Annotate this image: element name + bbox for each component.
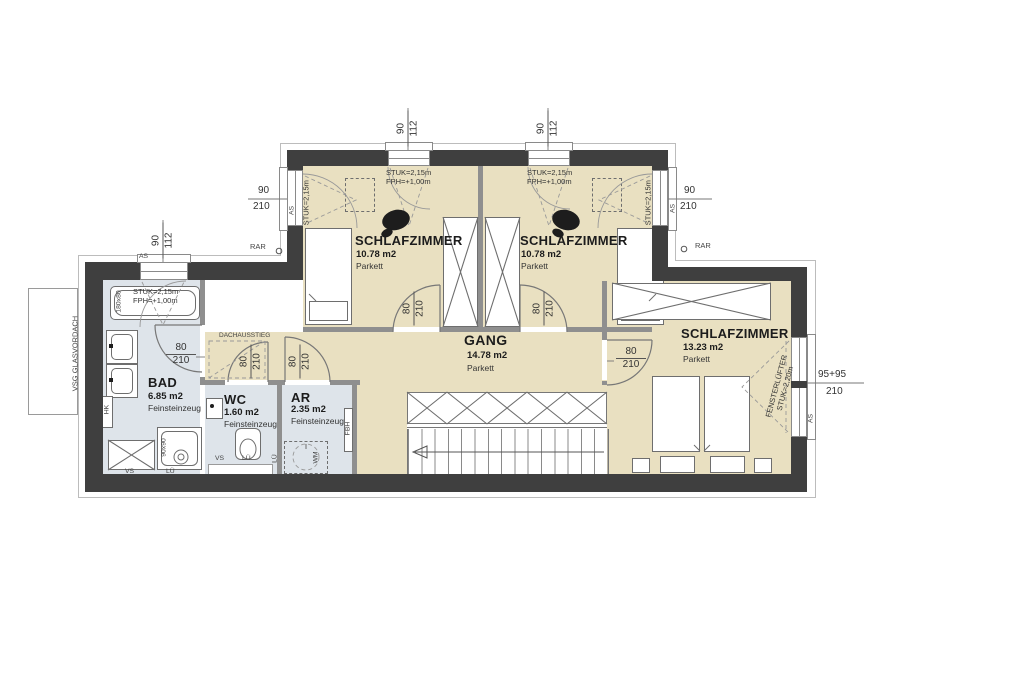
wall-bedroom2-right-upper <box>652 150 668 172</box>
dim-a: 80 <box>532 292 545 326</box>
ar-area: 2.35 m2 <box>291 404 326 415</box>
dim-window-bedroom1-a: 90 <box>258 185 269 196</box>
dim-b: 210 <box>415 292 427 326</box>
ar-floor: Feinsteinzeug <box>291 416 344 426</box>
window-top2 <box>528 150 570 166</box>
dim-window-bedroom3-b: 210 <box>826 386 843 397</box>
offset-line-bottom <box>78 497 816 498</box>
bedroom2-sidewindow-note: STUK=2,15m <box>643 173 652 233</box>
wc-floor: Feinsteinzeug <box>224 419 277 429</box>
bedroom2-window-note: STUK=2,15m FPH=+1,00m <box>527 168 572 187</box>
bed-single-1-pillow <box>309 301 348 321</box>
bedroom1-area: 10.78 m2 <box>356 249 396 260</box>
as-label-bedroom2: AS <box>670 202 677 216</box>
window-bedroom2 <box>652 170 668 226</box>
bad-floor: Feinsteinzeug <box>148 403 201 413</box>
bad-area: 6.85 m2 <box>148 391 183 402</box>
fbh-label: FBH <box>345 420 352 438</box>
bed-double-mattress-right <box>704 376 750 452</box>
window-bedroom3-mullion <box>791 381 807 388</box>
fph-note: FPH=+1,00m <box>133 296 178 305</box>
dim-a: 90 <box>396 111 409 147</box>
dim-window-bedroom2-a: 90 <box>684 185 695 196</box>
dim-a: 90 <box>536 111 549 147</box>
bedroom1-window-note: STUK=2,15m FPH=+1,00m <box>386 168 431 187</box>
offset-line-step-right <box>675 260 816 261</box>
dim-b: 210 <box>616 359 646 371</box>
ar-title: AR <box>291 390 310 405</box>
stairs <box>407 429 609 474</box>
wardrobe-bedroom2 <box>485 217 520 327</box>
dim-b: 112 <box>409 111 421 147</box>
bathroom-cabinet <box>108 440 155 470</box>
bed-double-pillow-right <box>710 456 745 473</box>
bedroom3-title: SCHLAFZIMMER <box>681 326 789 341</box>
dim-b: 210 <box>252 345 264 379</box>
vs-label-bad: VS <box>125 468 134 475</box>
glasvordach-label: VSG GLASVORDACH <box>71 294 80 414</box>
bathtub-size-label: 180x80 <box>116 287 123 317</box>
sink-2-basin <box>111 368 133 394</box>
lue-label-ar: LÜ <box>272 452 279 466</box>
dim-a: 80 <box>166 342 196 355</box>
closet-bedroom3 <box>612 283 771 320</box>
bedroom3-area: 13.23 m2 <box>683 342 723 353</box>
dim-window-bedroom2-b: 210 <box>680 201 697 212</box>
dim-window-bedroom3-a: 95+95 <box>818 369 846 380</box>
dim-window-top1: 90 112 <box>396 111 421 147</box>
bedroom2-title: SCHLAFZIMMER <box>520 233 628 248</box>
wc-area: 1.60 m2 <box>224 407 259 418</box>
railing-double-line <box>407 427 607 428</box>
floor-gang-landing <box>355 380 407 474</box>
dim-a: 90 <box>151 223 164 259</box>
vs-label-wc: VS <box>215 455 224 462</box>
wm-label: WM <box>313 450 320 466</box>
nightstand-left <box>632 458 650 473</box>
dim-window-top2: 90 112 <box>536 111 561 147</box>
dim-window-bedroom1-b: 210 <box>253 201 270 212</box>
bedroom1-sidewindow-note: STUK=2,15m <box>301 173 310 233</box>
dim-a: 80 <box>402 292 415 326</box>
dim-b: 210 <box>545 292 557 326</box>
fph-note: FPH=+1,00m <box>386 177 431 186</box>
wall-bedrooms-gang-c <box>567 327 652 332</box>
dim-b: 112 <box>164 223 176 259</box>
dim-door-bedroom1: 80 210 <box>402 292 427 326</box>
dim-a: 80 <box>288 345 301 379</box>
wall-bedrooms-gang-a <box>303 327 393 332</box>
wall-west-top-b <box>188 262 303 280</box>
wc-title: WC <box>224 392 246 407</box>
wall-wc-ar-top-a <box>200 380 225 385</box>
dim-b: 112 <box>549 111 561 147</box>
wall-east-upper <box>791 267 807 337</box>
hk-label: HK <box>104 403 111 417</box>
bedroom3-floor: Parkett <box>683 354 710 364</box>
dim-b: 210 <box>301 345 313 379</box>
dim-window-bad: 90 112 <box>151 223 176 259</box>
floor-gang-strip <box>407 380 607 392</box>
dachausstieg-label: DACHAUSSTIEG <box>219 332 270 339</box>
bed-double-pillow-left <box>660 456 695 473</box>
as-label-bad: AS <box>139 253 148 260</box>
bad-title: BAD <box>148 375 177 390</box>
wall-gang-bedroom3-b <box>602 381 607 385</box>
window-bad <box>140 262 188 280</box>
shower-size-label: 90x90 <box>161 433 168 463</box>
wc-hand-basin <box>206 398 223 419</box>
as-label-bedroom3: AS <box>808 412 815 426</box>
wall-step-east <box>652 267 807 281</box>
window-top1 <box>388 150 430 166</box>
dim-door-bad: 80 210 <box>166 342 196 367</box>
floor-plan: SCHLAFZIMMER 10.78 m2 Parkett SCHLAFZIMM… <box>0 0 1024 683</box>
window-bedroom2-sill <box>668 167 677 231</box>
rar-label-left: RAR <box>250 242 266 251</box>
bedroom1-floor: Parkett <box>356 261 383 271</box>
sink-1-basin <box>111 334 133 360</box>
stuk-note: STUK=2,15m <box>527 168 572 177</box>
bad-window-note: STUK=2,15m FPH=+1,00m <box>133 287 178 306</box>
desk-bedroom2 <box>592 178 622 212</box>
nightstand-right <box>754 458 772 473</box>
stuk-note: STUK=2,15m <box>386 168 431 177</box>
dim-b: 210 <box>166 355 196 367</box>
wall-south <box>85 474 807 492</box>
wall-west <box>85 262 103 492</box>
floor-gang <box>205 332 602 380</box>
bed-double-mattress-left <box>652 376 700 452</box>
rar-label-right: RAR <box>695 241 711 250</box>
dim-a: 80 <box>616 346 646 359</box>
wall-between-bedrooms <box>478 166 483 327</box>
dim-door-bedroom2: 80 210 <box>532 292 557 326</box>
wall-gang-bedroom3-a <box>602 281 607 340</box>
dim-door-ar: 80 210 <box>288 345 313 379</box>
gang-title: GANG <box>464 332 508 348</box>
lue-label-wc: LÜ <box>242 455 251 462</box>
dim-door-wc: 80 210 <box>239 345 264 379</box>
dim-door-bedroom3: 80 210 <box>616 346 646 371</box>
fph-note: FPH=+1,00m <box>527 177 572 186</box>
bedroom1-title: SCHLAFZIMMER <box>355 233 463 248</box>
gang-area: 14.78 m2 <box>467 350 507 361</box>
lue-label-bad: LÜ <box>166 468 175 475</box>
stair-railing <box>407 392 607 424</box>
dim-a: 80 <box>239 345 252 379</box>
desk-bedroom1 <box>345 178 375 212</box>
bedroom2-area: 10.78 m2 <box>521 249 561 260</box>
offset-line-top <box>280 143 675 144</box>
bedroom2-floor: Parkett <box>521 261 548 271</box>
stuk-note: STUK=2,15m <box>133 287 178 296</box>
rar-marker-right <box>681 246 687 252</box>
as-label-bedroom1: AS <box>289 204 296 218</box>
wall-bedroom1-left-upper <box>287 150 303 172</box>
wall-east-lower <box>791 437 807 492</box>
wall-bad-gang-a <box>200 280 205 325</box>
wall-top-b <box>430 150 528 166</box>
gang-floor: Parkett <box>467 363 494 373</box>
washing-machine <box>284 441 328 474</box>
